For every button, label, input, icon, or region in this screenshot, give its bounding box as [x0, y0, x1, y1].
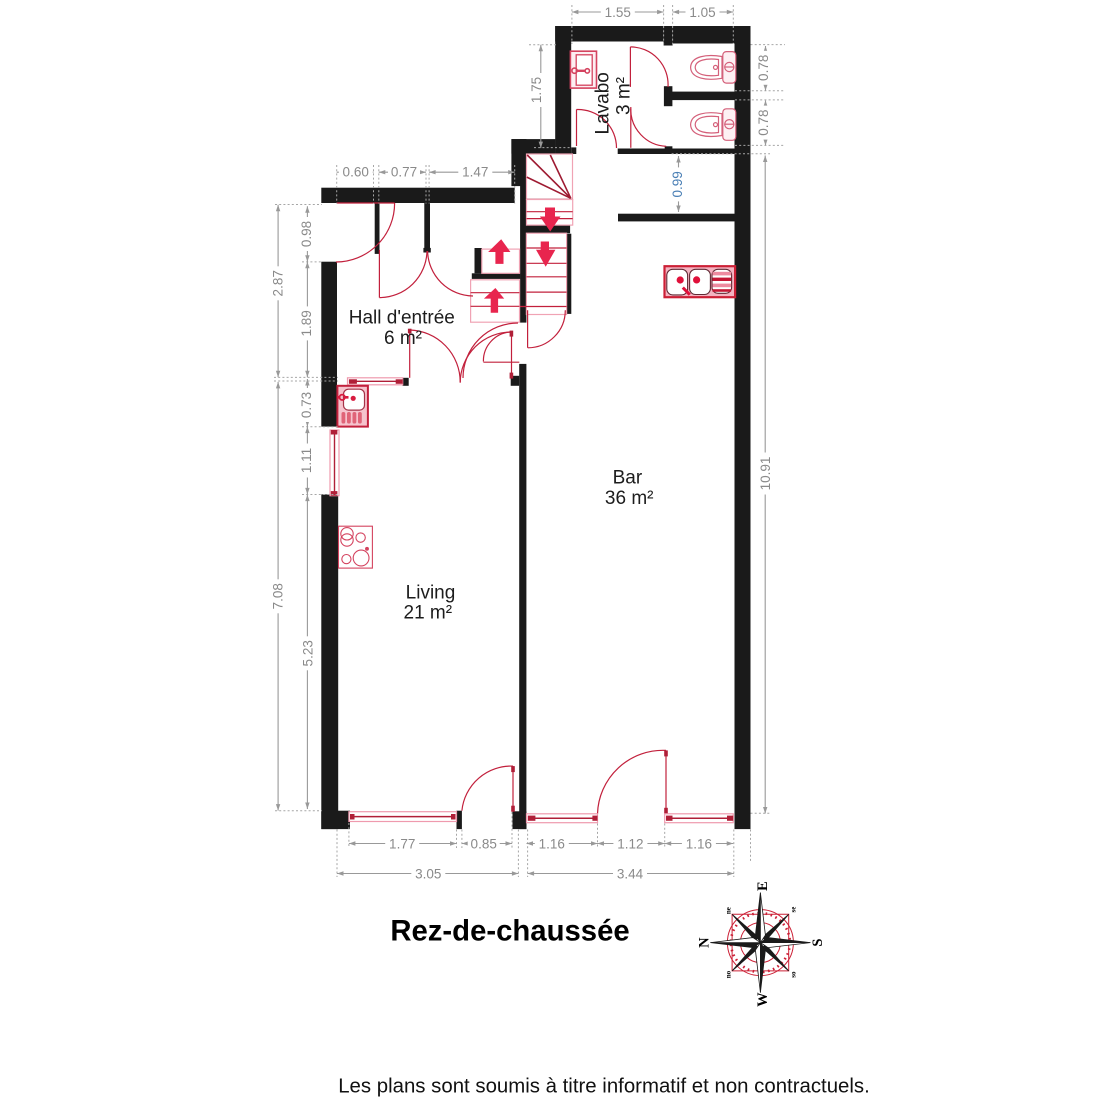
svg-text:0.98: 0.98 [299, 221, 314, 247]
svg-text:1.55: 1.55 [605, 5, 631, 20]
svg-text:3 m²: 3 m² [614, 77, 635, 115]
svg-text:S: S [810, 939, 826, 947]
svg-text:1.12: 1.12 [617, 837, 643, 852]
svg-text:no: no [724, 970, 732, 978]
svg-text:36 m²: 36 m² [605, 488, 654, 509]
svg-text:se: se [789, 907, 797, 913]
svg-text:Bar: Bar [613, 467, 643, 488]
svg-text:1.05: 1.05 [689, 5, 715, 20]
svg-text:1.89: 1.89 [299, 310, 314, 336]
svg-text:0.85: 0.85 [471, 837, 497, 852]
svg-text:2.87: 2.87 [271, 270, 286, 296]
svg-text:0.78: 0.78 [756, 55, 771, 81]
svg-text:7.08: 7.08 [270, 583, 285, 609]
svg-text:3.44: 3.44 [617, 867, 644, 882]
svg-text:W: W [755, 992, 771, 1007]
svg-text:0.78: 0.78 [756, 109, 771, 135]
svg-text:1.16: 1.16 [539, 837, 565, 852]
svg-text:10.91: 10.91 [758, 457, 773, 491]
svg-text:0.99: 0.99 [670, 171, 685, 197]
svg-text:E: E [755, 881, 771, 891]
svg-text:Rez-de-chaussée: Rez-de-chaussée [390, 915, 629, 948]
svg-text:N: N [696, 937, 712, 948]
svg-text:Les plans sont soumis à titre: Les plans sont soumis à titre informatif… [338, 1076, 870, 1098]
svg-text:ne: ne [724, 907, 732, 914]
svg-text:3.05: 3.05 [415, 867, 441, 882]
svg-text:0.60: 0.60 [343, 164, 369, 179]
svg-text:1.11: 1.11 [299, 448, 314, 473]
svg-text:so: so [789, 971, 797, 978]
svg-text:Lavabo: Lavabo [593, 72, 614, 134]
svg-text:0.77: 0.77 [391, 164, 417, 179]
svg-text:Living: Living [406, 583, 456, 604]
svg-text:5.23: 5.23 [301, 640, 316, 666]
svg-text:Hall d'entrée: Hall d'entrée [349, 308, 455, 329]
svg-text:0.73: 0.73 [299, 392, 314, 418]
svg-text:1.16: 1.16 [686, 837, 712, 852]
svg-text:1.77: 1.77 [389, 837, 415, 852]
svg-text:1.75: 1.75 [529, 77, 544, 103]
svg-text:6 m²: 6 m² [384, 328, 422, 349]
svg-text:21 m²: 21 m² [404, 602, 453, 623]
svg-text:1.47: 1.47 [462, 164, 488, 179]
